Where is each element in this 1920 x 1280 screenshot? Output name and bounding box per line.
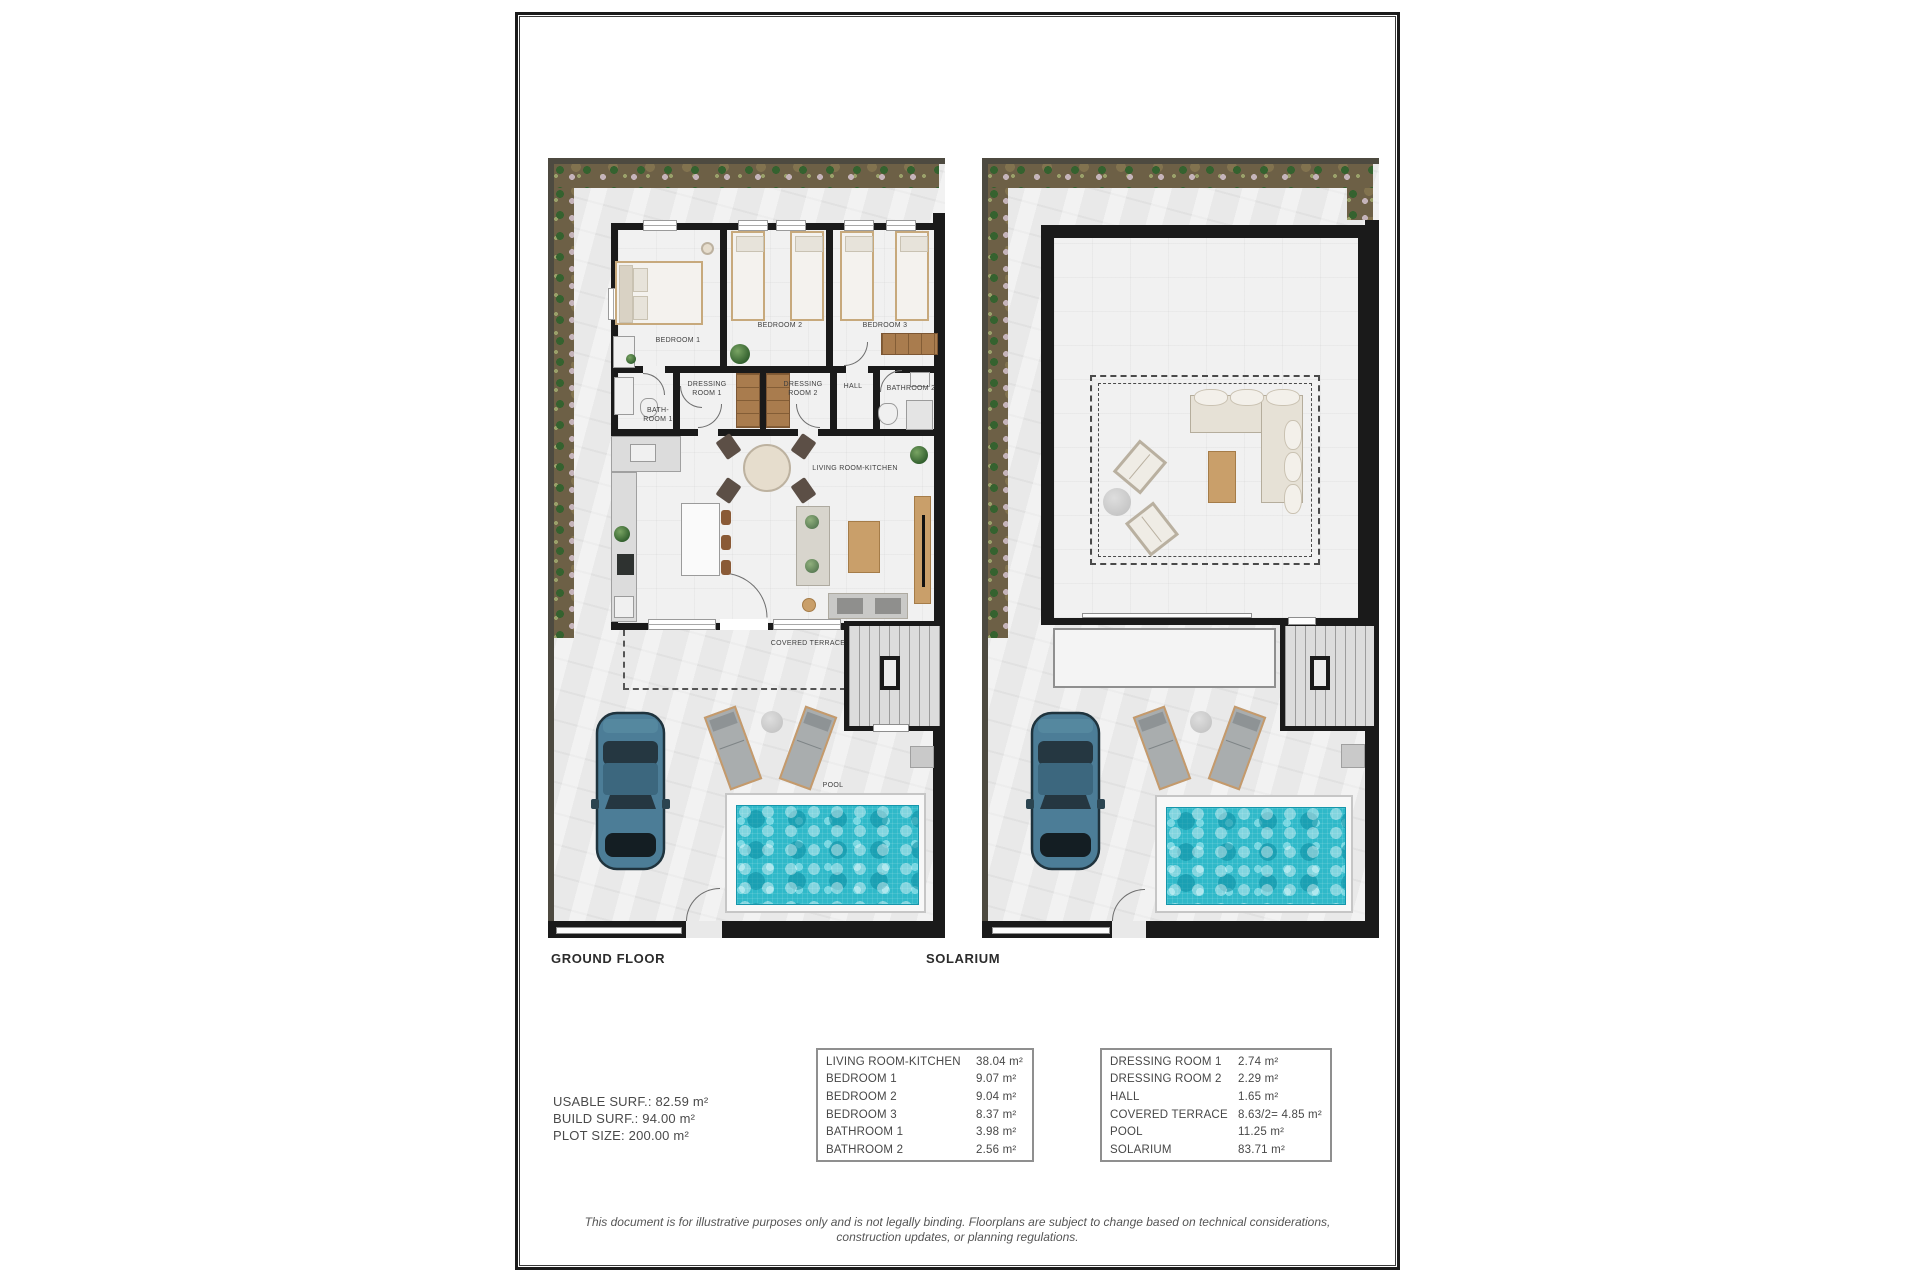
table-row: BEDROOM 38.37 m²	[818, 1106, 1032, 1124]
kitchen-sink	[630, 444, 656, 462]
window-bedroom3-a	[844, 220, 874, 231]
sofa-cushion	[1284, 452, 1302, 482]
garden-strip-top	[988, 164, 1373, 188]
room-label-bathroom2: BATHROOM 2	[884, 384, 938, 393]
room-label-bedroom2: BEDROOM 2	[745, 321, 815, 330]
double-bed	[615, 261, 703, 325]
disclaimer-text: This document is for illustrative purpos…	[570, 1215, 1345, 1245]
garden-strip-left	[554, 188, 574, 638]
table-row: BATHROOM 13.98 m²	[818, 1123, 1032, 1141]
room-label-bedroom3: BEDROOM 3	[850, 321, 920, 330]
sofa-cushion-leaf	[805, 559, 819, 573]
plan-title-ground-floor: GROUND FLOOR	[551, 951, 665, 966]
plant-icon	[910, 446, 928, 464]
wall-br2-br3	[826, 223, 833, 373]
side-table	[802, 598, 816, 612]
car-graphic	[591, 711, 670, 871]
tv-unit	[914, 496, 931, 604]
room-label-hall: HALL	[837, 382, 869, 391]
plant-icon	[626, 354, 636, 364]
sofa-cushion	[1230, 389, 1264, 406]
bar-stool	[721, 510, 731, 525]
swimming-pool	[736, 805, 919, 905]
room-name: HALL	[1102, 1091, 1238, 1103]
room-area: 1.65 m²	[1238, 1091, 1278, 1103]
surface-summary: USABLE SURF.: 82.59 m² BUILD SURF.: 94.0…	[553, 1093, 708, 1144]
bench-cushion	[837, 598, 863, 614]
door-gap-bedroom1	[643, 366, 665, 373]
solarium-plan	[982, 158, 1379, 940]
dishwasher	[614, 596, 634, 618]
area-table-main: LIVING ROOM-KITCHEN38.04 m² BEDROOM 19.0…	[816, 1048, 1034, 1162]
bar-stool	[721, 560, 731, 575]
room-area: 9.04 m²	[976, 1091, 1016, 1103]
stove-hob	[617, 554, 634, 575]
ac-unit	[1341, 744, 1365, 768]
garden-strip-top	[554, 164, 939, 188]
wall-br1-br2	[720, 223, 727, 373]
pool-side-table	[761, 711, 783, 733]
build-surface-line: BUILD SURF.: 94.00 m²	[553, 1110, 708, 1127]
bed-pillow	[795, 236, 823, 252]
swimming-pool	[1166, 807, 1346, 905]
door-gap-living	[720, 619, 768, 630]
single-bed	[731, 231, 765, 321]
garden-strip-right	[1347, 188, 1373, 220]
room-area: 2.74 m²	[1238, 1056, 1278, 1068]
room-name: COVERED TERRACE	[1102, 1109, 1238, 1121]
kitchen-island	[681, 503, 720, 576]
room-name: POOL	[1102, 1126, 1238, 1138]
car-graphic	[1026, 711, 1105, 871]
table-row: BEDROOM 29.04 m²	[818, 1088, 1032, 1106]
bench-sofa	[828, 593, 908, 619]
outdoor-side-table	[1103, 488, 1131, 516]
table-row: DRESSING ROOM 22.29 m²	[1102, 1071, 1330, 1089]
ground-floor-plan: BEDROOM 1 BEDROOM 2 BEDROOM 3 DRESSING R…	[548, 158, 945, 940]
sofa-cushion	[1284, 484, 1302, 514]
room-label-pool: POOL	[808, 781, 858, 790]
room-area: 38.04 m²	[976, 1056, 1023, 1068]
room-name: BEDROOM 1	[818, 1073, 976, 1085]
wall-mid-bottom	[611, 429, 941, 436]
pool-deck	[725, 793, 926, 913]
usable-surface-line: USABLE SURF.: 82.59 m²	[553, 1093, 708, 1110]
room-label-terrace: COVERED TERRACE	[758, 639, 858, 648]
room-label-bedroom1: BEDROOM 1	[643, 336, 713, 345]
bed-pillow	[845, 236, 873, 252]
plan-title-solarium: SOLARIUM	[926, 951, 1000, 966]
room-area: 83.71 m²	[1238, 1144, 1285, 1156]
garden-strip-left	[988, 188, 1008, 638]
room-name: DRESSING ROOM 1	[1102, 1056, 1238, 1068]
plant-icon	[730, 344, 750, 364]
terrace-dashed-bottom	[623, 688, 846, 690]
door-gap-bedroom3	[846, 366, 868, 373]
terrace-roof-band	[1053, 628, 1276, 688]
coffee-table	[848, 521, 880, 573]
bed-pillow	[633, 296, 648, 320]
room-name: SOLARIUM	[1102, 1144, 1238, 1156]
plot-edge-top	[548, 158, 945, 164]
bed-headboard	[619, 265, 633, 323]
room-label-bathroom1: BATH-ROOM 1	[643, 406, 673, 424]
table-row: LIVING ROOM-KITCHEN38.04 m²	[818, 1053, 1032, 1071]
room-name: BEDROOM 3	[818, 1109, 976, 1121]
table-row: BEDROOM 19.07 m²	[818, 1071, 1032, 1089]
window-bedroom1	[643, 220, 677, 231]
plant-icon	[614, 526, 630, 542]
table-row: HALL1.65 m²	[1102, 1088, 1330, 1106]
entry-gap	[686, 921, 722, 938]
plot-size-line: PLOT SIZE: 200.00 m²	[553, 1127, 708, 1144]
room-area: 8.37 m²	[976, 1109, 1016, 1121]
room-name: BATHROOM 2	[818, 1144, 976, 1156]
room-area: 2.56 m²	[976, 1144, 1016, 1156]
single-bed	[840, 231, 874, 321]
bar-stool	[721, 535, 731, 550]
driveway-gate	[556, 927, 682, 934]
area-table-secondary: DRESSING ROOM 12.74 m² DRESSING ROOM 22.…	[1100, 1048, 1332, 1162]
sofa	[796, 506, 830, 586]
shower	[906, 400, 933, 430]
window-bedroom3-b	[886, 220, 916, 231]
sofa-cushion	[1266, 389, 1300, 406]
room-area: 11.25 m²	[1238, 1126, 1284, 1138]
table-row: SOLARIUM83.71 m²	[1102, 1141, 1330, 1159]
roof-railing	[1082, 613, 1252, 618]
table-row: COVERED TERRACE8.63/2= 4.85 m²	[1102, 1106, 1330, 1124]
entry-gap	[1112, 921, 1146, 938]
stairs-gate	[1288, 617, 1316, 625]
wardrobe-dressing1	[736, 373, 760, 428]
bed-pillow	[633, 268, 648, 292]
room-label-living: LIVING ROOM-KITCHEN	[803, 464, 907, 473]
plot-edge-top	[982, 158, 1379, 164]
window-bedroom2-a	[738, 220, 768, 231]
room-name: BATHROOM 1	[818, 1126, 976, 1138]
plot-edge-left	[548, 158, 554, 938]
single-bed	[895, 231, 929, 321]
wardrobe	[881, 333, 938, 355]
window-living-a	[648, 619, 716, 630]
room-name: LIVING ROOM-KITCHEN	[818, 1056, 976, 1068]
room-area: 8.63/2= 4.85 m²	[1238, 1109, 1322, 1121]
outdoor-coffee-table	[1208, 451, 1236, 503]
terrace-dashed-left	[623, 630, 625, 689]
tv-screen	[922, 515, 925, 587]
room-label-dressing2: DRESSING ROOM 2	[782, 380, 824, 398]
wall-hall-bath2	[873, 366, 880, 436]
room-area: 3.98 m²	[976, 1126, 1016, 1138]
bed-pillow	[736, 236, 764, 252]
bench-cushion	[875, 598, 901, 614]
room-name: BEDROOM 2	[818, 1091, 976, 1103]
room-label-dressing1: DRESSING ROOM 1	[686, 380, 728, 398]
bedside-table	[701, 242, 714, 255]
page-border: BEDROOM 1 BEDROOM 2 BEDROOM 3 DRESSING R…	[515, 12, 1400, 1270]
wall-bath1-right	[673, 366, 680, 436]
bed-pillow	[900, 236, 928, 252]
sofa-cushion	[1284, 420, 1302, 450]
bathtub	[614, 377, 634, 415]
driveway-gate	[992, 927, 1110, 934]
sofa-cushion-leaf	[805, 515, 819, 529]
window-living-b	[773, 619, 841, 630]
car-top-view	[591, 711, 670, 871]
dining-table	[743, 444, 791, 492]
car-top-view	[1026, 711, 1105, 871]
pool-side-table	[1190, 711, 1212, 733]
table-row: DRESSING ROOM 12.74 m²	[1102, 1053, 1330, 1071]
staircase-core	[880, 656, 900, 690]
table-row: POOL11.25 m²	[1102, 1123, 1330, 1141]
toilet	[878, 403, 898, 425]
room-area: 2.29 m²	[1238, 1073, 1278, 1085]
staircase-core	[1310, 656, 1330, 690]
door-gap-dressing1	[698, 429, 718, 436]
stairs-gate	[873, 724, 909, 732]
plot-edge-left	[982, 158, 988, 938]
table-row: BATHROOM 22.56 m²	[818, 1141, 1032, 1159]
sofa-cushion	[1194, 389, 1228, 406]
floorplan-sheet: BEDROOM 1 BEDROOM 2 BEDROOM 3 DRESSING R…	[0, 0, 1920, 1280]
ac-unit	[910, 746, 934, 768]
window-bedroom2-b	[776, 220, 806, 231]
room-area: 9.07 m²	[976, 1073, 1016, 1085]
single-bed	[790, 231, 824, 321]
wall-dressing2-hall	[830, 366, 837, 436]
room-name: DRESSING ROOM 2	[1102, 1073, 1238, 1085]
pool-deck	[1155, 795, 1353, 913]
